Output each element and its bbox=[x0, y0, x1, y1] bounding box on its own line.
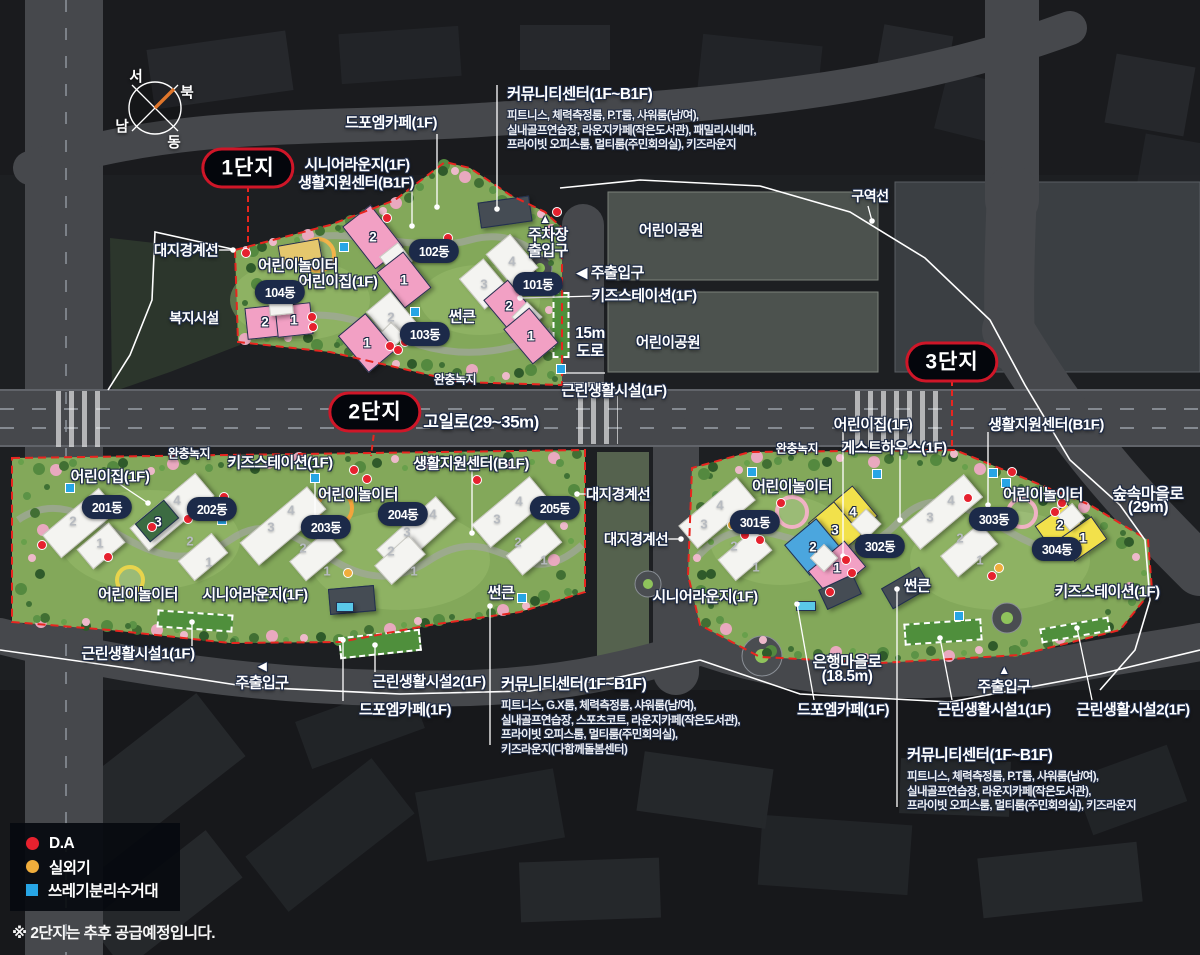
tree bbox=[345, 456, 351, 462]
info-block-line: 피트니스, G.X룸, 체력측정룸, 샤워룸(남/여), bbox=[501, 699, 740, 714]
tree bbox=[30, 508, 40, 518]
da-marker bbox=[37, 540, 47, 550]
tree bbox=[269, 238, 277, 246]
legend-square-icon bbox=[26, 884, 38, 896]
unit-number: 1 bbox=[400, 273, 408, 288]
map-label: 썬큰 bbox=[904, 575, 931, 596]
tree bbox=[988, 641, 998, 651]
apartment-site-plan-map: 2121214321214321432143214321432143214321… bbox=[0, 0, 1200, 955]
map-label: 완충녹지 bbox=[776, 440, 818, 457]
building-number-pill: 304동 bbox=[1032, 537, 1082, 561]
da-marker bbox=[755, 535, 765, 545]
tree bbox=[1009, 645, 1021, 657]
map-label: ◀ 주출입구 bbox=[576, 262, 644, 283]
tree bbox=[311, 339, 323, 351]
map-label: 어린이집(1F) bbox=[299, 271, 378, 292]
tree bbox=[433, 614, 445, 626]
unit-number: 4 bbox=[947, 493, 954, 508]
tree bbox=[257, 242, 267, 252]
tree bbox=[101, 620, 113, 632]
building bbox=[336, 602, 354, 612]
unit-number: 2 bbox=[1056, 518, 1064, 533]
tree bbox=[390, 197, 402, 209]
da-marker bbox=[307, 312, 317, 322]
outdoor-unit-marker bbox=[343, 568, 353, 578]
tree bbox=[564, 473, 570, 479]
building-number-pill: 104동 bbox=[255, 280, 305, 304]
tree bbox=[414, 617, 422, 625]
map-label: 대지경계선 bbox=[154, 240, 218, 261]
tree bbox=[975, 646, 983, 654]
tree bbox=[1132, 553, 1140, 561]
tree bbox=[502, 372, 510, 380]
retail-green-strip bbox=[553, 292, 570, 358]
tree bbox=[1105, 609, 1111, 615]
map-label: 생활지원센터(B1F) bbox=[413, 453, 529, 474]
unit-number: 3 bbox=[700, 517, 707, 532]
trash-collection-marker bbox=[556, 364, 566, 374]
building-number-pill: 202동 bbox=[187, 497, 237, 521]
tree bbox=[459, 171, 471, 183]
tree bbox=[572, 449, 582, 459]
tree bbox=[716, 616, 724, 624]
tree bbox=[556, 459, 564, 467]
tree bbox=[1141, 570, 1147, 576]
map-label: 근린생활시설2(1F) bbox=[1076, 699, 1189, 720]
trash-collection-marker bbox=[517, 593, 527, 603]
unit-number: 2 bbox=[809, 540, 817, 555]
da-marker bbox=[1050, 507, 1060, 517]
community-center-info-block: 커뮤니티센터(1F~B1F)피트니스, 체력측정룸, P.T룸, 샤워룸(남/여… bbox=[507, 82, 756, 153]
unit-number: 3 bbox=[926, 510, 933, 525]
tree bbox=[525, 364, 537, 376]
map-label: 드포엠카페(1F) bbox=[359, 699, 451, 720]
building bbox=[796, 601, 816, 611]
tree bbox=[33, 615, 41, 623]
tree bbox=[401, 622, 407, 628]
community-center-info-block: 커뮤니티센터(1F~B1F)피트니스, 체력측정룸, P.T룸, 샤워룸(남/여… bbox=[907, 743, 1136, 814]
tree bbox=[735, 466, 743, 474]
map-label: 어린이집(1F) bbox=[834, 414, 913, 435]
complex-pill: 3단지 bbox=[905, 342, 998, 383]
tree bbox=[917, 460, 923, 466]
legend-label: 쓰레기분리수거대 bbox=[48, 879, 158, 901]
unit-number: 2 bbox=[730, 539, 737, 554]
unit-number: 3 bbox=[831, 523, 839, 538]
building-number-pill: 103동 bbox=[400, 322, 450, 346]
map-label: 주출입구 bbox=[235, 672, 288, 693]
unit-number: 1 bbox=[527, 329, 535, 344]
tree bbox=[283, 637, 289, 643]
outdoor-unit-marker bbox=[994, 563, 1004, 573]
building-number-pill: 204동 bbox=[378, 502, 428, 526]
compass-west: 서 bbox=[129, 66, 142, 87]
map-label: 어린이놀이터 bbox=[1003, 484, 1083, 505]
map-label: 어린이공원 bbox=[639, 220, 703, 241]
tree bbox=[697, 570, 707, 580]
map-label: 근린생활시설1(1F) bbox=[937, 699, 1050, 720]
unit-number: 3 bbox=[267, 520, 274, 535]
tree bbox=[242, 300, 248, 306]
crosswalk bbox=[578, 396, 618, 444]
tree bbox=[439, 362, 445, 368]
trash-collection-marker bbox=[410, 307, 420, 317]
community-center-info-block: 커뮤니티센터(1F~B1F)피트니스, G.X룸, 체력측정룸, 샤워룸(남/여… bbox=[501, 672, 740, 757]
map-label: 드포엠카페(1F) bbox=[345, 112, 437, 133]
trash-collection-marker bbox=[954, 611, 964, 621]
tree bbox=[497, 604, 509, 616]
tree bbox=[556, 570, 566, 580]
tree bbox=[59, 461, 69, 471]
tree bbox=[266, 630, 278, 642]
unit-number: 2 bbox=[186, 534, 193, 549]
unit-number: 2 bbox=[369, 230, 377, 245]
map-label: 생활지원센터(B1F) bbox=[988, 414, 1104, 435]
building-number-pill: 201동 bbox=[82, 495, 132, 519]
tree bbox=[895, 655, 901, 661]
compass-rose: 서 북 남 동 bbox=[103, 56, 207, 160]
unit-number: 3 bbox=[480, 277, 487, 292]
tree bbox=[180, 631, 188, 639]
da-marker bbox=[349, 465, 359, 475]
unit-number: 4 bbox=[429, 507, 436, 522]
tree bbox=[316, 632, 326, 642]
unit-number: 2 bbox=[956, 531, 963, 546]
tree bbox=[961, 650, 967, 656]
tree bbox=[1020, 639, 1028, 647]
tree bbox=[708, 462, 718, 472]
map-label: (18.5m) bbox=[822, 668, 873, 686]
map-label: 드포엠카페(1F) bbox=[797, 699, 889, 720]
unit-number: 4 bbox=[508, 254, 515, 269]
trash-collection-marker bbox=[310, 473, 320, 483]
unit-number: 3 bbox=[493, 512, 500, 527]
tree bbox=[159, 465, 165, 471]
tree bbox=[402, 465, 408, 471]
unit-number: 2 bbox=[261, 315, 269, 330]
tree bbox=[82, 618, 90, 626]
tree bbox=[701, 618, 711, 628]
tree bbox=[392, 360, 400, 368]
tree bbox=[572, 589, 578, 595]
tree bbox=[486, 608, 496, 618]
map-label: 근린생활시설2(1F) bbox=[372, 671, 485, 692]
unit-number: 1 bbox=[833, 561, 841, 576]
map-label: 도로 bbox=[576, 339, 604, 361]
da-marker bbox=[362, 474, 372, 484]
legend-circle-icon bbox=[26, 837, 39, 850]
map-label: 대지경계선 bbox=[586, 484, 650, 505]
building-number-pill: 101동 bbox=[513, 272, 563, 296]
tree bbox=[564, 588, 572, 596]
tree bbox=[335, 225, 341, 231]
da-marker bbox=[552, 207, 562, 217]
unit-number: 1 bbox=[752, 560, 759, 575]
da-marker bbox=[963, 493, 973, 503]
tree bbox=[246, 263, 256, 273]
tree bbox=[372, 458, 382, 468]
info-block-title: 커뮤니티센터(1F~B1F) bbox=[507, 82, 756, 104]
info-block-line: 실내골프연습장, 라운지카페(작은도서관), 패밀리시네마, bbox=[507, 124, 756, 139]
info-block-line: 프라이빗 오피스룸, 멀티룸(주민회의실), 키즈라운지 bbox=[907, 799, 1136, 814]
tree bbox=[35, 569, 45, 579]
tree bbox=[911, 651, 919, 659]
da-marker bbox=[472, 475, 482, 485]
tree bbox=[514, 368, 524, 378]
tree bbox=[788, 646, 794, 652]
da-marker bbox=[987, 571, 997, 581]
tree bbox=[230, 638, 236, 644]
tree bbox=[706, 569, 716, 579]
info-block-title: 커뮤니티센터(1F~B1F) bbox=[907, 743, 1136, 765]
trash-collection-marker bbox=[339, 242, 349, 252]
unit-number: 1 bbox=[323, 564, 330, 579]
tree bbox=[943, 650, 955, 662]
tree bbox=[522, 602, 530, 610]
map-label: 완충녹지 bbox=[434, 371, 476, 388]
complex-pill: 1단지 bbox=[201, 148, 294, 189]
unit-number: 2 bbox=[387, 310, 394, 325]
map-label: 고일로(29~35m) bbox=[423, 408, 539, 433]
map-label: 어린이공원 bbox=[636, 332, 700, 353]
tree bbox=[15, 583, 27, 595]
info-block-line: 실내골프연습장, 라운지카페(작은도서관), bbox=[907, 785, 1136, 800]
tree bbox=[21, 539, 27, 545]
unit-number: 4 bbox=[515, 494, 522, 509]
info-block-line: 피트니스, 체력측정룸, P.T룸, 샤워룸(남/여), bbox=[507, 109, 756, 124]
tree bbox=[26, 601, 32, 607]
building-number-pill: 301동 bbox=[730, 510, 780, 534]
crosswalk bbox=[56, 391, 106, 447]
map-label: (29m) bbox=[1128, 499, 1168, 517]
tree bbox=[18, 459, 24, 465]
map-label: 대지경계선 bbox=[604, 529, 668, 550]
map-label: 출입구 bbox=[528, 240, 568, 261]
tree bbox=[404, 193, 414, 203]
tree bbox=[199, 631, 209, 641]
map-label: 완충녹지 bbox=[168, 445, 210, 462]
legend-label: D.A bbox=[49, 835, 74, 853]
tree bbox=[762, 459, 772, 469]
map-label: 주출입구 bbox=[977, 676, 1030, 697]
map-label: 키즈스테이션(1F) bbox=[591, 285, 696, 306]
da-marker bbox=[103, 552, 113, 562]
da-marker bbox=[841, 555, 851, 565]
tree bbox=[249, 633, 259, 643]
tree bbox=[720, 623, 732, 635]
tree bbox=[962, 464, 968, 470]
info-block-line: 프라이빗 오피스룸, 멀티룸(주민회의실), bbox=[501, 728, 740, 743]
tree bbox=[568, 484, 580, 496]
legend-item: 실외기 bbox=[26, 855, 180, 878]
map-label: 근린생활시설1(1F) bbox=[81, 643, 194, 664]
map-label: 생활지원센터(B1F) bbox=[298, 172, 414, 193]
unit-number: 1 bbox=[363, 336, 371, 351]
tree bbox=[489, 376, 495, 382]
unit-number: 1 bbox=[290, 313, 298, 328]
unit-number: 1 bbox=[976, 553, 983, 568]
tree bbox=[61, 619, 67, 625]
tree bbox=[451, 167, 459, 175]
compass-north: 북 bbox=[180, 82, 193, 103]
tree bbox=[449, 614, 455, 620]
map-label: 복지시설 bbox=[169, 308, 219, 328]
tree bbox=[926, 646, 936, 656]
unit-number: 2 bbox=[514, 535, 521, 550]
map-label: 근린생활시설(1F) bbox=[561, 380, 666, 401]
unit-number: 4 bbox=[173, 493, 180, 508]
tree bbox=[475, 612, 483, 620]
tree bbox=[774, 457, 782, 465]
legend-circle-icon bbox=[26, 860, 39, 873]
unit-number: 1 bbox=[205, 555, 212, 570]
tree bbox=[868, 456, 880, 468]
info-block-line: 실내골프연습장, 스포츠코트, 라운지카페(작은도서관), bbox=[501, 714, 740, 729]
tree bbox=[744, 460, 750, 466]
tree bbox=[125, 623, 131, 629]
tree bbox=[530, 596, 540, 606]
tree bbox=[693, 554, 701, 562]
unit-number: 4 bbox=[716, 498, 723, 513]
legend: D.A실외기쓰레기분리수거대 bbox=[10, 823, 180, 911]
map-label: 썬큰 bbox=[488, 582, 515, 603]
da-marker bbox=[1007, 467, 1017, 477]
da-marker bbox=[847, 568, 857, 578]
tree bbox=[205, 464, 213, 472]
tree bbox=[315, 226, 325, 236]
building-number-pill: 205동 bbox=[530, 496, 580, 520]
tree bbox=[489, 186, 497, 194]
unit-number: 4 bbox=[849, 505, 857, 520]
map-label: 어린이놀이터 bbox=[318, 484, 398, 505]
building-number-pill: 303동 bbox=[969, 507, 1019, 531]
tree bbox=[808, 459, 820, 471]
compass-east: 동 bbox=[167, 132, 180, 153]
info-block-line: 피트니스, 체력측정룸, P.T룸, 샤워룸(남/여), bbox=[907, 770, 1136, 785]
compass-south: 남 bbox=[115, 116, 128, 137]
trash-collection-marker bbox=[988, 468, 998, 478]
tree bbox=[822, 457, 832, 467]
tree bbox=[300, 634, 308, 642]
da-marker bbox=[308, 322, 318, 332]
unit-number: 2 bbox=[505, 299, 513, 314]
tree bbox=[759, 636, 767, 644]
unit-number: 4 bbox=[287, 503, 294, 518]
unit-number: 1 bbox=[96, 536, 103, 551]
map-label: 어린이놀이터 bbox=[98, 584, 178, 605]
map-label: 게스트하우스(1F) bbox=[841, 437, 946, 458]
tree bbox=[421, 359, 433, 371]
da-marker bbox=[825, 587, 835, 597]
tree bbox=[529, 459, 535, 465]
complex-pill: 2단지 bbox=[328, 392, 421, 433]
info-block-line: 프라이빗 오피스룸, 멀티룸(주민회의실), 키즈라운지 bbox=[507, 138, 756, 153]
legend-item: D.A bbox=[26, 832, 180, 855]
unit-number: 1 bbox=[540, 553, 547, 568]
unit-number: 2 bbox=[387, 544, 394, 559]
tree bbox=[334, 342, 340, 348]
building-number-pill: 102동 bbox=[409, 239, 459, 263]
tree bbox=[438, 166, 448, 176]
unit-number: 2 bbox=[69, 514, 76, 529]
tree bbox=[794, 651, 802, 659]
da-marker bbox=[147, 522, 157, 532]
tree bbox=[548, 554, 560, 566]
tree bbox=[429, 173, 435, 179]
unit-number: 1 bbox=[410, 564, 417, 579]
tree bbox=[974, 463, 986, 475]
map-label: 어린이놀이터 bbox=[752, 476, 832, 497]
tree bbox=[762, 648, 772, 658]
map-label: 시니어라운지(1F) bbox=[652, 586, 757, 607]
tree bbox=[1124, 537, 1134, 547]
tree bbox=[742, 632, 748, 638]
tree bbox=[33, 463, 45, 475]
tree bbox=[218, 462, 224, 468]
building-number-pill: 203동 bbox=[301, 515, 351, 539]
trash-collection-marker bbox=[872, 469, 882, 479]
compass-icon bbox=[103, 56, 207, 160]
unit-number: 3 bbox=[403, 525, 410, 540]
legend-item: 쓰레기분리수거대 bbox=[26, 878, 180, 901]
map-label: 시니어라운지(1F) bbox=[202, 584, 307, 605]
tree bbox=[552, 376, 558, 382]
map-label: 어린이집(1F) bbox=[71, 466, 150, 487]
tree bbox=[751, 451, 763, 463]
tree bbox=[407, 359, 417, 369]
legend-label: 실외기 bbox=[49, 856, 90, 878]
tree bbox=[28, 554, 36, 562]
tree bbox=[474, 178, 484, 188]
da-marker bbox=[382, 213, 392, 223]
tree bbox=[416, 183, 424, 191]
tree bbox=[560, 522, 568, 530]
da-marker bbox=[241, 248, 251, 258]
map-label: 썬큰 bbox=[449, 306, 476, 327]
tree bbox=[40, 613, 50, 623]
map-label: 키즈스테이션(1F) bbox=[227, 452, 332, 473]
map-label: 키즈스테이션(1F) bbox=[1054, 581, 1159, 602]
building-number-pill: 302동 bbox=[855, 534, 905, 558]
tree bbox=[1120, 530, 1126, 536]
tree bbox=[44, 484, 50, 490]
tree bbox=[950, 450, 958, 458]
tree bbox=[708, 539, 714, 545]
tree bbox=[1100, 522, 1108, 530]
tree bbox=[391, 455, 399, 463]
tree bbox=[23, 492, 31, 500]
supply-note: ※ 2단지는 추후 공급예정입니다. bbox=[12, 921, 215, 943]
da-marker bbox=[776, 498, 786, 508]
info-block-line: 키즈라운지(다함께돌봄센터) bbox=[501, 743, 740, 758]
da-marker bbox=[393, 345, 403, 355]
map-label: 구역선 bbox=[851, 186, 888, 206]
info-block-title: 커뮤니티센터(1F~B1F) bbox=[501, 672, 740, 694]
unit-number: 2 bbox=[299, 541, 306, 556]
tree bbox=[568, 538, 574, 544]
